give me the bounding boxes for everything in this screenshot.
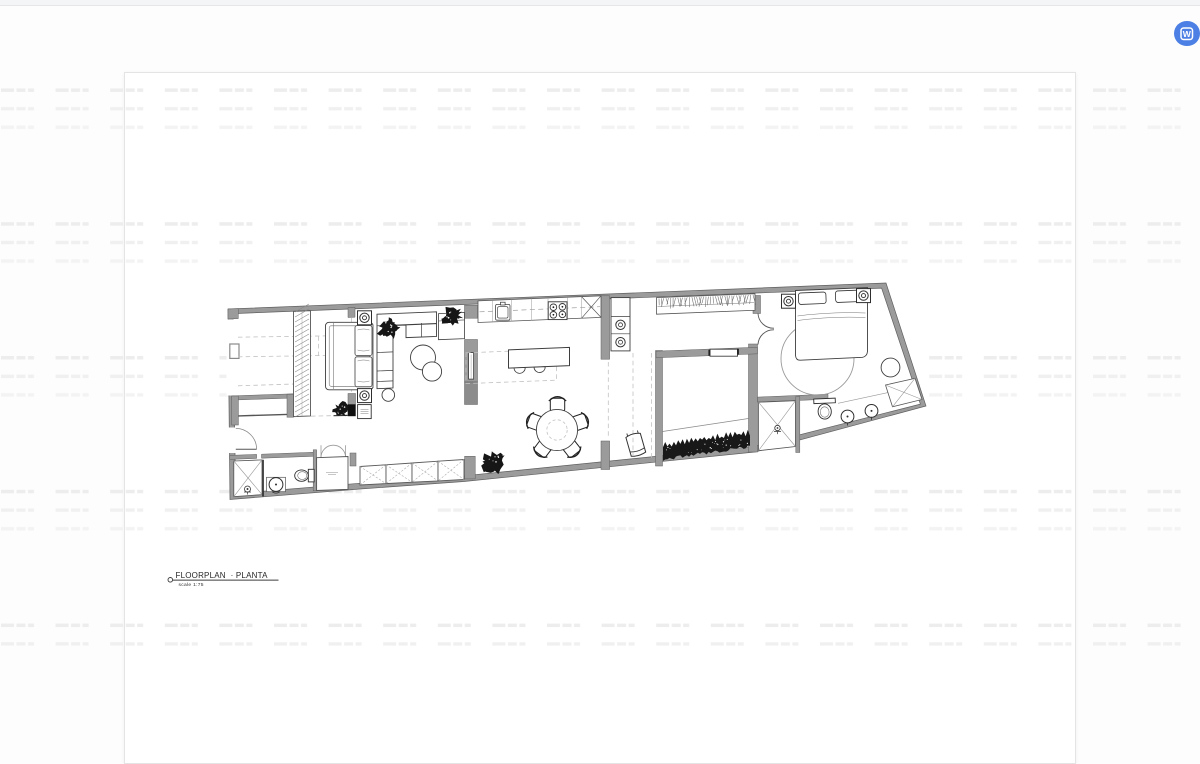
- svg-text:scale 1:75: scale 1:75: [179, 582, 204, 588]
- svg-text:W: W: [1183, 29, 1192, 39]
- svg-text:FLOORPLAN · PLANTA: FLOORPLAN · PLANTA: [176, 571, 269, 580]
